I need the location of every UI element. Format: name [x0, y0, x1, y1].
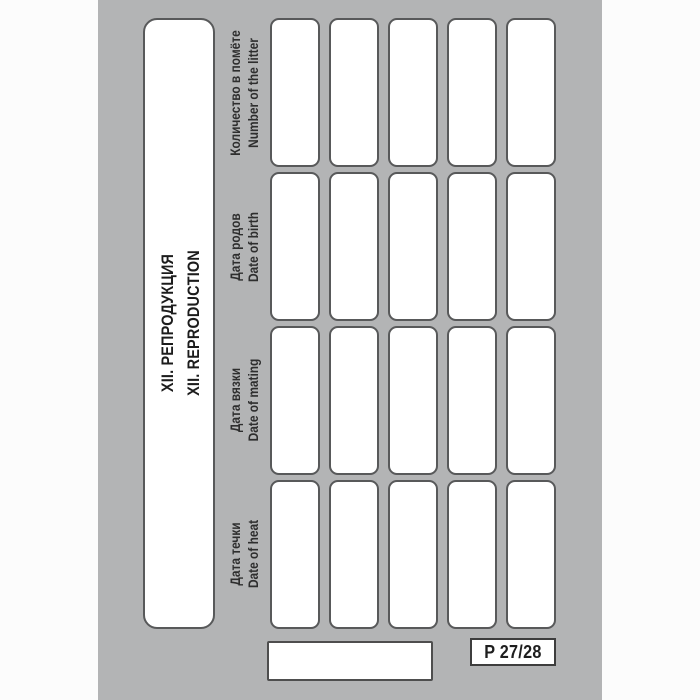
column-header-en: Date of heat	[244, 520, 262, 588]
entry-cell	[388, 326, 438, 475]
passport-page: XII. РЕПРОДУКЦИЯ XII. REPRODUCTION Колич…	[98, 0, 602, 700]
page-number: P 27/28	[484, 642, 541, 663]
column-header-date-of-heat: Дата течки Date of heat	[226, 520, 262, 588]
column-header-ru: Дата течки	[226, 520, 244, 588]
column-header-date-of-birth: Дата родов Date of birth	[226, 212, 262, 282]
entry-cell	[270, 18, 320, 167]
entry-cell	[270, 172, 320, 321]
entry-cell	[447, 480, 497, 629]
entry-cell	[506, 172, 556, 321]
column-header-litter-count: Количество в помёте Number of the litter	[226, 30, 262, 155]
entry-cell	[329, 326, 379, 475]
entry-cell	[270, 480, 320, 629]
entry-cell	[447, 326, 497, 475]
column-header-en: Date of birth	[244, 212, 262, 282]
blank-label-box	[267, 641, 433, 681]
entry-cell	[506, 326, 556, 475]
entry-cell	[388, 172, 438, 321]
entry-cell	[506, 480, 556, 629]
entry-cell	[329, 18, 379, 167]
entry-cell	[447, 18, 497, 167]
entry-cell	[447, 172, 497, 321]
entry-cell	[329, 172, 379, 321]
column-header-ru: Дата вязки	[226, 359, 244, 442]
column-header-en: Number of the litter	[244, 30, 262, 155]
entry-cell	[388, 480, 438, 629]
column-header-en: Date of mating	[244, 359, 262, 442]
section-title-en: XII. REPRODUCTION	[181, 250, 207, 396]
entries-grid	[270, 18, 556, 629]
entry-cell	[329, 480, 379, 629]
section-title-ru: XII. РЕПРОДУКЦИЯ	[155, 250, 181, 396]
entry-cell	[270, 326, 320, 475]
column-header-ru: Дата родов	[226, 212, 244, 282]
section-title: XII. РЕПРОДУКЦИЯ XII. REPRODUCTION	[155, 250, 207, 396]
column-header-date-of-mating: Дата вязки Date of mating	[226, 359, 262, 442]
entry-cell	[506, 18, 556, 167]
page-number-box: P 27/28	[470, 638, 556, 666]
column-header-ru: Количество в помёте	[226, 30, 244, 155]
entry-cell	[388, 18, 438, 167]
